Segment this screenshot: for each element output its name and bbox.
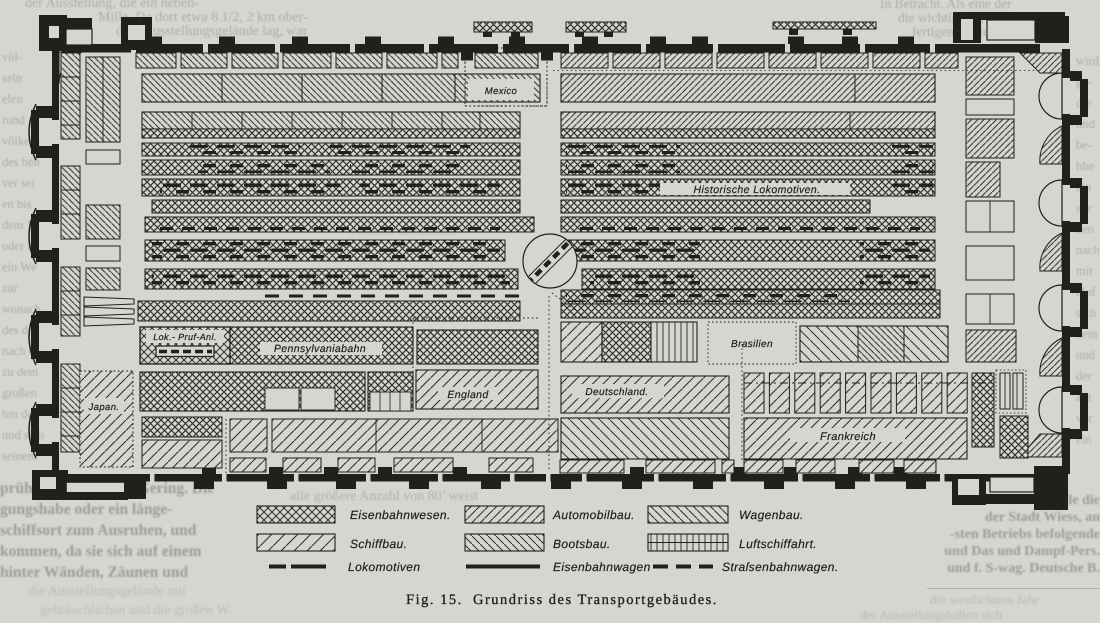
svg-text:Straſsenbahnwagen.: Straſsenbahnwagen. [722, 560, 839, 574]
svg-text:Pennsylvaniabahn: Pennsylvaniabahn [274, 343, 366, 355]
svg-text:Automobilbau.: Automobilbau. [552, 508, 635, 522]
svg-text:Fig. 15. Grundriss des Transp: Fig. 15. Grundriss des Transportgebäudes… [406, 592, 718, 608]
svg-text:Eisenbahnwesen.: Eisenbahnwesen. [350, 508, 451, 522]
svg-text:Japan.: Japan. [88, 402, 120, 413]
svg-text:Eisenbahnwagen: Eisenbahnwagen [553, 560, 651, 574]
svg-text:Mexico: Mexico [485, 86, 518, 97]
svg-text:Deutschland.: Deutschland. [585, 387, 648, 398]
svg-text:Wagenbau.: Wagenbau. [739, 508, 804, 522]
svg-text:Schiffbau.: Schiffbau. [350, 537, 407, 551]
svg-text:England: England [447, 389, 489, 401]
svg-text:Bootsbau.: Bootsbau. [553, 537, 611, 551]
svg-text:Lokomotiven: Lokomotiven [348, 560, 420, 574]
svg-text:Luftschiffahrt.: Luftschiffahrt. [739, 537, 817, 551]
svg-text:Frankreich: Frankreich [820, 431, 876, 443]
svg-text:Lok.- Pruf-Anl.: Lok.- Pruf-Anl. [153, 332, 217, 342]
svg-text:Brasilien: Brasilien [731, 339, 773, 350]
svg-text:Historische Lokomotiven.: Historische Lokomotiven. [694, 184, 821, 196]
